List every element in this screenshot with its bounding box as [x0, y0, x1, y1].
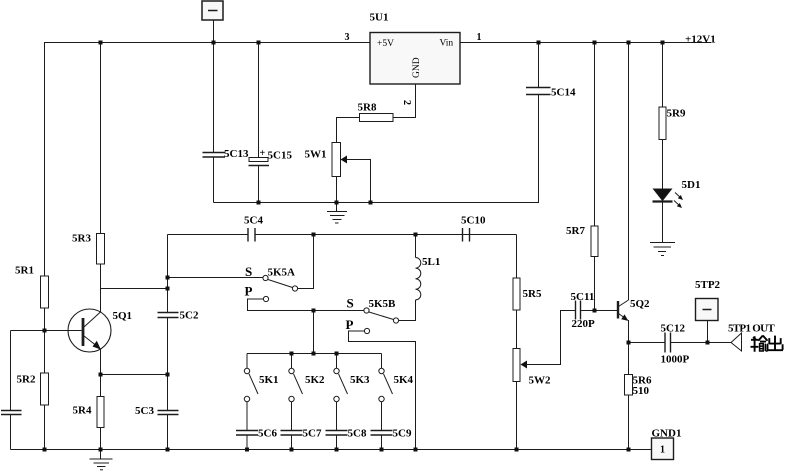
svg-text:+12V1: +12V1 [685, 34, 716, 46]
svg-text:5C9: 5C9 [393, 428, 412, 440]
svg-text:5K4: 5K4 [394, 374, 414, 386]
svg-text:5W1: 5W1 [305, 149, 327, 161]
svg-text:5R9: 5R9 [667, 108, 686, 120]
svg-text:5K2: 5K2 [305, 374, 325, 386]
svg-text:5C12: 5C12 [661, 323, 686, 335]
svg-text:5K3: 5K3 [350, 374, 370, 386]
svg-text:5C4: 5C4 [244, 215, 263, 227]
svg-text:5R5: 5R5 [523, 288, 542, 300]
svg-text:Vin: Vin [440, 39, 454, 49]
svg-text:P: P [245, 284, 253, 299]
svg-text:GND: GND [412, 57, 422, 78]
svg-text:5C3: 5C3 [135, 405, 154, 417]
svg-text:GND1: GND1 [652, 428, 682, 440]
svg-text:510: 510 [633, 385, 650, 397]
svg-text:5R4: 5R4 [73, 405, 92, 417]
svg-text:5C11: 5C11 [571, 291, 595, 303]
svg-text:5C15: 5C15 [268, 150, 293, 162]
svg-text:S: S [347, 296, 354, 311]
svg-text:5K5B: 5K5B [369, 298, 397, 310]
svg-text:S: S [245, 264, 252, 279]
svg-text:5C8: 5C8 [348, 428, 367, 440]
svg-text:5C10: 5C10 [461, 215, 486, 227]
svg-text:5K5A: 5K5A [268, 267, 296, 279]
svg-text:5K1: 5K1 [259, 374, 279, 386]
svg-text:5Q1: 5Q1 [113, 310, 133, 322]
svg-text:+: + [260, 148, 266, 159]
svg-text:1000P: 1000P [661, 354, 690, 366]
svg-text:5D1: 5D1 [682, 179, 701, 191]
svg-text:5R3: 5R3 [72, 233, 91, 245]
svg-text:2: 2 [401, 100, 412, 105]
svg-text:1: 1 [660, 445, 665, 456]
svg-text:5C6: 5C6 [258, 428, 277, 440]
svg-text:3: 3 [345, 32, 350, 43]
svg-text:5R1: 5R1 [15, 265, 34, 277]
svg-text:5C2: 5C2 [180, 310, 199, 322]
svg-text:5R2: 5R2 [17, 374, 36, 386]
svg-text:5L1: 5L1 [422, 256, 440, 268]
svg-text:5R7: 5R7 [566, 225, 585, 237]
svg-text:5R8: 5R8 [358, 102, 377, 114]
svg-text:5TP1 OUT: 5TP1 OUT [728, 323, 775, 335]
svg-text:5C13: 5C13 [224, 148, 249, 160]
svg-text:220P: 220P [572, 318, 596, 330]
svg-text:P: P [346, 317, 354, 332]
svg-text:+5V: +5V [377, 39, 394, 49]
svg-text:1: 1 [477, 32, 482, 43]
svg-text:5U1: 5U1 [370, 12, 389, 24]
svg-text:5C14: 5C14 [551, 87, 576, 99]
svg-text:5TP2: 5TP2 [695, 279, 721, 291]
svg-text:5C7: 5C7 [303, 428, 322, 440]
svg-text:5Q2: 5Q2 [630, 298, 650, 310]
svg-text:5W2: 5W2 [529, 375, 552, 387]
